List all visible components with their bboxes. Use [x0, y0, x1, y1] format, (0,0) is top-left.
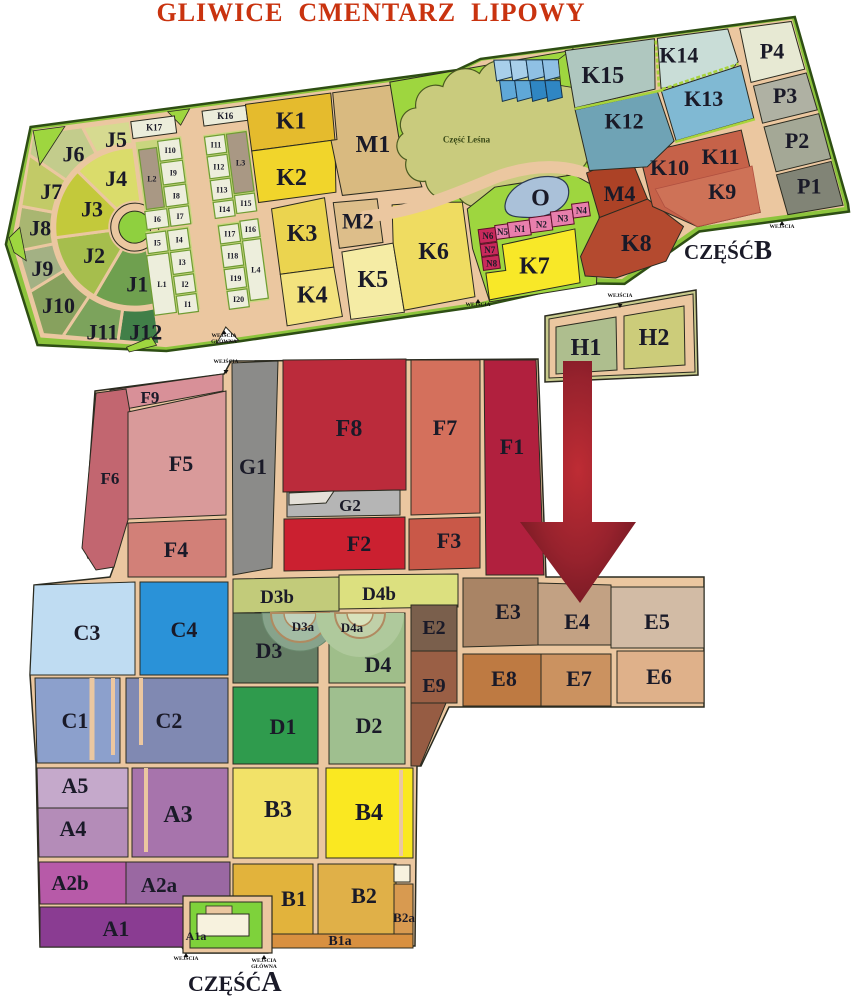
svg-text:J7: J7 — [40, 179, 62, 204]
svg-text:J12: J12 — [129, 320, 162, 345]
svg-text:E6: E6 — [646, 664, 672, 689]
svg-text:I8: I8 — [173, 191, 180, 200]
svg-text:B2: B2 — [351, 883, 377, 908]
svg-text:I15: I15 — [240, 199, 251, 208]
svg-text:J8: J8 — [29, 216, 51, 241]
svg-text:I13: I13 — [216, 185, 227, 194]
svg-text:K5: K5 — [357, 267, 388, 293]
svg-text:E3: E3 — [495, 599, 521, 624]
svg-text:F8: F8 — [336, 416, 363, 442]
svg-text:I14: I14 — [219, 205, 230, 214]
svg-text:K1: K1 — [276, 109, 307, 135]
svg-text:GŁÓWNA: GŁÓWNA — [251, 962, 277, 970]
svg-text:M2: M2 — [342, 209, 374, 234]
svg-text:I12: I12 — [213, 162, 224, 171]
svg-text:N7: N7 — [484, 245, 495, 255]
svg-text:A1: A1 — [103, 916, 130, 941]
svg-text:A2b: A2b — [51, 871, 88, 895]
svg-text:K15: K15 — [581, 63, 624, 89]
svg-text:GLIWICE CMENTARZ LIPOWY: GLIWICE CMENTARZ LIPOWY — [156, 0, 585, 27]
svg-text:I2: I2 — [182, 280, 189, 289]
svg-text:A2a: A2a — [141, 873, 178, 897]
svg-text:P4: P4 — [760, 38, 784, 63]
svg-text:J10: J10 — [42, 293, 75, 318]
svg-text:B1: B1 — [281, 886, 307, 911]
svg-text:M4: M4 — [604, 181, 636, 206]
svg-text:K17: K17 — [146, 123, 163, 133]
svg-text:D4b: D4b — [362, 584, 396, 605]
svg-text:I5: I5 — [154, 238, 161, 247]
svg-text:G2: G2 — [339, 496, 361, 515]
svg-text:L2: L2 — [147, 174, 156, 183]
svg-text:B1a: B1a — [328, 934, 351, 949]
svg-text:F7: F7 — [433, 415, 457, 440]
svg-text:F1: F1 — [500, 434, 524, 459]
svg-text:N4: N4 — [576, 205, 587, 215]
svg-text:I6: I6 — [154, 215, 161, 224]
svg-text:J1: J1 — [126, 271, 148, 296]
svg-text:J3: J3 — [81, 197, 103, 222]
svg-text:C4: C4 — [171, 617, 198, 642]
svg-text:K16: K16 — [217, 111, 234, 121]
svg-text:I19: I19 — [230, 274, 241, 283]
svg-text:I20: I20 — [233, 295, 244, 304]
svg-text:P3: P3 — [773, 83, 797, 108]
svg-text:F6: F6 — [101, 469, 120, 488]
svg-text:I10: I10 — [165, 146, 176, 155]
svg-text:D2: D2 — [356, 713, 383, 738]
svg-text:J11: J11 — [86, 319, 118, 344]
svg-text:N1: N1 — [514, 224, 525, 234]
svg-text:C3: C3 — [74, 620, 101, 645]
svg-text:F3: F3 — [437, 528, 461, 553]
svg-text:E9: E9 — [422, 675, 445, 697]
svg-text:D1: D1 — [270, 714, 297, 739]
svg-text:K11: K11 — [702, 144, 740, 169]
svg-text:J9: J9 — [31, 256, 53, 281]
svg-text:I1: I1 — [184, 300, 191, 309]
svg-text:I4: I4 — [176, 235, 183, 244]
svg-text:I9: I9 — [170, 169, 177, 178]
svg-text:K13: K13 — [684, 86, 723, 111]
svg-text:E2: E2 — [422, 617, 445, 639]
svg-text:C1: C1 — [62, 708, 89, 733]
svg-text:P2: P2 — [785, 128, 809, 153]
svg-text:WEJŚCIA: WEJŚCIA — [607, 291, 632, 299]
svg-text:A5: A5 — [62, 773, 89, 798]
svg-text:D3b: D3b — [260, 587, 294, 608]
svg-text:K8: K8 — [621, 231, 652, 257]
svg-text:E4: E4 — [564, 609, 590, 634]
svg-text:K3: K3 — [287, 221, 318, 247]
svg-text:G1: G1 — [239, 454, 267, 479]
svg-text:CZĘŚĆA: CZĘŚĆA — [188, 967, 282, 996]
svg-text:D4a: D4a — [341, 620, 364, 635]
svg-text:A3: A3 — [163, 802, 192, 828]
svg-text:D3a: D3a — [292, 619, 315, 634]
svg-text:N2: N2 — [536, 219, 547, 229]
svg-text:K9: K9 — [708, 179, 736, 204]
svg-text:O: O — [531, 185, 550, 211]
svg-text:N8: N8 — [486, 258, 497, 268]
svg-text:I3: I3 — [179, 258, 186, 267]
svg-text:L3: L3 — [236, 159, 245, 168]
svg-text:J5: J5 — [105, 127, 127, 152]
svg-text:B2a: B2a — [393, 910, 415, 925]
svg-text:A4: A4 — [60, 816, 87, 841]
svg-text:F2: F2 — [347, 531, 371, 556]
svg-text:K14: K14 — [659, 43, 698, 68]
svg-text:K6: K6 — [418, 239, 449, 265]
svg-text:I16: I16 — [245, 225, 256, 234]
svg-text:F9: F9 — [141, 388, 160, 407]
svg-text:K2: K2 — [276, 165, 307, 191]
svg-text:GŁÓWNA: GŁÓWNA — [211, 337, 237, 345]
svg-text:E7: E7 — [566, 666, 592, 691]
svg-text:B4: B4 — [355, 800, 383, 826]
svg-text:F4: F4 — [164, 537, 188, 562]
svg-text:J4: J4 — [105, 166, 127, 191]
svg-text:I17: I17 — [224, 230, 235, 239]
svg-text:L4: L4 — [251, 266, 260, 275]
svg-text:F5: F5 — [169, 451, 193, 476]
svg-text:A1a: A1a — [186, 929, 207, 943]
svg-text:I18: I18 — [227, 251, 238, 260]
svg-text:M1: M1 — [356, 132, 391, 158]
svg-text:Część Leśna: Część Leśna — [443, 135, 491, 145]
svg-text:J6: J6 — [63, 142, 85, 167]
svg-text:E5: E5 — [644, 609, 670, 634]
svg-text:K4: K4 — [297, 282, 328, 308]
svg-text:K7: K7 — [519, 254, 550, 280]
svg-text:P1: P1 — [797, 174, 821, 199]
svg-text:I11: I11 — [211, 141, 222, 150]
svg-text:N6: N6 — [482, 231, 493, 241]
svg-text:B3: B3 — [264, 797, 292, 823]
svg-text:WEJŚCIA: WEJŚCIA — [213, 357, 238, 365]
svg-text:K12: K12 — [604, 109, 643, 134]
svg-text:H2: H2 — [639, 325, 670, 351]
svg-text:C2: C2 — [156, 708, 183, 733]
svg-text:N5: N5 — [497, 227, 508, 237]
svg-text:I7: I7 — [177, 212, 184, 221]
svg-text:J2: J2 — [83, 243, 105, 268]
svg-text:L1: L1 — [157, 280, 166, 289]
svg-text:E8: E8 — [491, 666, 517, 691]
svg-text:H1: H1 — [571, 335, 602, 361]
svg-text:CZĘŚĆB: CZĘŚĆB — [684, 235, 772, 265]
svg-text:K10: K10 — [650, 155, 689, 180]
svg-text:N3: N3 — [557, 213, 568, 223]
